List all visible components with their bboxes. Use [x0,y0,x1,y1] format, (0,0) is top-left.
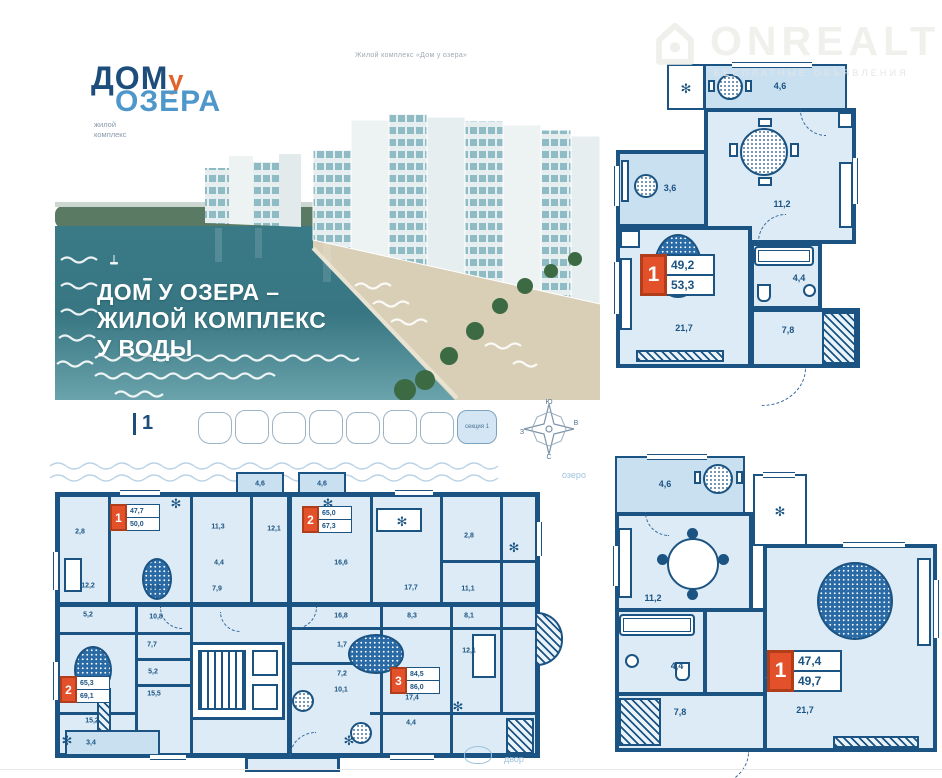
fan-icon: ✻ [344,733,355,749]
radiator-strip [636,350,724,362]
room-area: 7,7 [147,642,157,649]
house-icon [646,14,704,72]
fan-icon: ✻ [453,699,464,715]
chair [687,589,698,600]
room-area: 2,8 [464,533,474,540]
room-area: 8,3 [407,613,417,620]
radiator-strip [833,736,919,748]
window [843,542,905,548]
room-area: 12,1 [462,648,476,655]
door-arc [762,368,806,406]
apartment-number: 2 [60,676,77,703]
section-outline [346,412,380,444]
room-area: 11,2 [644,593,661,603]
section-1-highlighted: секция 1 [457,410,497,444]
floorplan-apartment-bottom: ✻ 1 47,4 49,7 4,6 11,2 21,7 4,4 7,8 [605,450,942,772]
watermark-brand: ONREALT [710,18,940,65]
wall [135,658,193,661]
room-area: 3,6 [664,183,677,193]
window [53,552,59,590]
floor-indicator: 1 [133,412,153,435]
window [53,662,59,700]
room-area: 10,8 [149,614,163,621]
rug-oval [817,562,893,640]
building-cluster-far [205,154,301,227]
room-area: 5,2 [83,612,93,619]
tagline-line-1: ДОМ У ОЗЕРА – [97,278,326,306]
wardrobe [822,312,856,364]
area-living: 84,5 [407,668,439,681]
fan-icon: ✻ [397,514,408,530]
window [852,158,858,204]
area-living: 65,0 [319,507,351,520]
kitchen-table [740,128,788,176]
area-total: 50,0 [127,518,159,530]
section-label: секция 1 [465,424,489,430]
area-total: 86,0 [407,681,439,693]
wall [380,605,383,758]
window [933,580,939,638]
dining-table [292,690,314,712]
hero-caption: Жилой комплекс «Дом у озера» [355,52,467,59]
bed [472,634,496,678]
apartment-number: 3 [390,667,407,694]
listing-image: ДОМу ОЗЕРА жилой комплекс Жилой комплекс… [0,0,942,778]
room-area: 12,2 [81,583,95,590]
building-section-schematic: секция 1 [198,408,498,450]
floor-number: 1 [142,412,153,435]
room-area: 7,9 [212,586,222,593]
chair [657,554,668,565]
section-outline [420,412,454,444]
bed [64,558,82,592]
section-outline [198,412,232,444]
wall [440,560,540,563]
apartment-number: 1 [640,254,667,296]
complex-logo: ДОМу ОЗЕРА жилой комплекс [91,62,221,140]
section-outline [272,412,306,444]
room-area: 1,7 [337,642,347,649]
tagline-line-2: ЖИЛОЙ КОМПЛЕКС [97,306,326,334]
apartment-tag: 2 65,067,3 [302,506,352,533]
compass-w-label: З [520,429,524,436]
apartment-tag: 1 47,750,0 [110,504,160,531]
compass-e-label: В [574,420,579,427]
apartment-tag: 2 65,369,1 [60,676,110,703]
wall [370,492,373,605]
room-area: 21,7 [675,323,693,333]
room-area: 12,1 [267,526,281,533]
chair [687,528,698,539]
chair [729,143,738,157]
window [614,262,620,314]
wall [500,492,503,605]
floorplan-full-floor: озеро [40,462,600,778]
toilet [757,284,771,302]
bay-balcony [537,612,563,666]
room-area: 7,8 [782,325,795,335]
room-area: 11,1 [461,586,474,593]
window [763,472,795,478]
wall [287,492,292,758]
window [613,546,619,586]
room-area: 4,4 [406,720,416,727]
room-area: 4,6 [659,479,672,489]
wall [55,712,135,715]
lake-label: озеро [562,470,586,480]
wall [450,605,453,758]
fan-icon: ✻ [171,496,182,512]
wall [135,684,193,687]
room-area: 17,4 [405,695,419,702]
room-area: 4,6 [255,481,265,488]
section-outline [309,410,343,444]
loggia-table [634,174,658,198]
stove-counter [839,162,853,228]
bottom-divider [0,769,942,770]
apartment-number: 1 [110,504,127,531]
stove-counter [618,528,632,598]
bench [621,160,629,202]
area-total: 53,3 [667,276,713,294]
kitchen-table [667,538,719,590]
elevator [252,684,278,710]
window [614,166,620,206]
room-area: 3,4 [86,740,96,747]
section-outline [235,410,269,444]
area-living: 47,7 [127,505,159,518]
wall [440,492,443,605]
area-total: 69,1 [77,690,109,702]
fan-icon: ✻ [509,540,520,556]
room-area: 7,2 [337,671,347,678]
room-area: 15,2 [85,718,99,725]
room-area: 10,1 [334,687,348,694]
tagline-line-3: У ВОДЫ [97,334,326,362]
apartment-tag: 1 49,2 53,3 [640,254,715,296]
wardrobe [506,718,534,754]
sofa [620,258,632,330]
room-area: 8,1 [464,613,474,620]
lake-waves [40,458,540,484]
room-area: 15,5 [147,691,161,698]
room-area: 11,3 [211,524,224,531]
fan-icon: ✻ [681,81,692,97]
room-area: 4,4 [793,273,806,283]
hero-tagline: ДОМ У ОЗЕРА – ЖИЛОЙ КОМПЛЕКС У ВОДЫ [97,278,326,362]
room-area: 4,4 [671,661,684,671]
room-area: 16,6 [334,560,348,567]
corridor [703,608,767,696]
room-area: 2,8 [75,529,85,536]
logo-word-ozera: ОЗЕРА [115,87,221,117]
chair [736,471,743,484]
room-area: 4,4 [214,560,224,567]
room-area: 17,7 [404,585,418,592]
wall [55,632,190,635]
tree-sketch [464,746,492,764]
armchair [620,230,640,248]
area-total: 67,3 [319,520,351,532]
room-area: 16,8 [334,613,348,620]
fan-icon: ✻ [775,504,786,520]
fridge [838,112,853,128]
yard-label: двор [504,754,524,764]
elevator [252,650,278,676]
area-total: 49,7 [794,672,840,690]
apartment-number: 1 [767,650,794,692]
sink [625,654,639,668]
wardrobe [619,698,661,746]
sink [803,284,816,297]
room-area: 7,8 [674,707,687,717]
rug-oval [142,558,172,600]
room-area: 4,6 [774,81,787,91]
loggia [616,150,708,228]
floorplan-apartment-top: ✻ [612,62,942,407]
room-area: 21,7 [796,705,814,715]
chair [790,143,799,157]
balcony-table [703,464,733,494]
apartment-number: 2 [302,506,319,533]
window [390,754,434,760]
window [395,490,433,496]
watermark-subtitle: БЕСПЛАТНЫЕ ОБЪЯВЛЕНИЯ [714,68,909,78]
window [150,754,186,760]
bathtub [619,614,695,636]
area-living: 65,3 [77,677,109,690]
logo-sub-line1: жилой [94,120,221,130]
chair [694,471,701,484]
wall [250,492,253,605]
window [120,490,160,496]
staircase [198,650,246,710]
room-area: 21,8 [147,585,161,592]
compass-s-label: Ю [545,399,552,406]
chair [758,177,772,186]
window [536,522,542,556]
wall [500,605,503,715]
apartment-tag: 3 84,586,0 [390,667,440,694]
bottom-balcony [65,730,160,756]
section-outline [383,410,417,444]
window [647,454,707,460]
area-living: 47,4 [794,652,840,672]
chair [758,118,772,127]
room-area: 4,6 [317,481,327,488]
sofa [917,558,931,646]
wall [190,492,193,605]
hero-promo: ДОМу ОЗЕРА жилой комплекс Жилой комплекс… [55,10,600,400]
room-area: 5,2 [148,669,158,676]
room-area: 11,2 [773,199,790,209]
area-living: 49,2 [667,256,713,276]
door-arc [705,752,749,778]
chair [718,554,729,565]
apartment-tag: 1 47,4 49,7 [767,650,842,692]
onrealt-watermark: ONREALT БЕСПЛАТНЫЕ ОБЪЯВЛЕНИЯ [638,10,940,82]
bathtub [754,246,814,266]
compass-n-label: С [546,454,551,460]
logo-sub-line2: комплекс [94,130,221,140]
divider-bar [133,413,136,435]
wall [135,605,138,732]
compass-rose: Ю В С З [518,398,580,460]
fan-icon: ✻ [62,733,73,749]
